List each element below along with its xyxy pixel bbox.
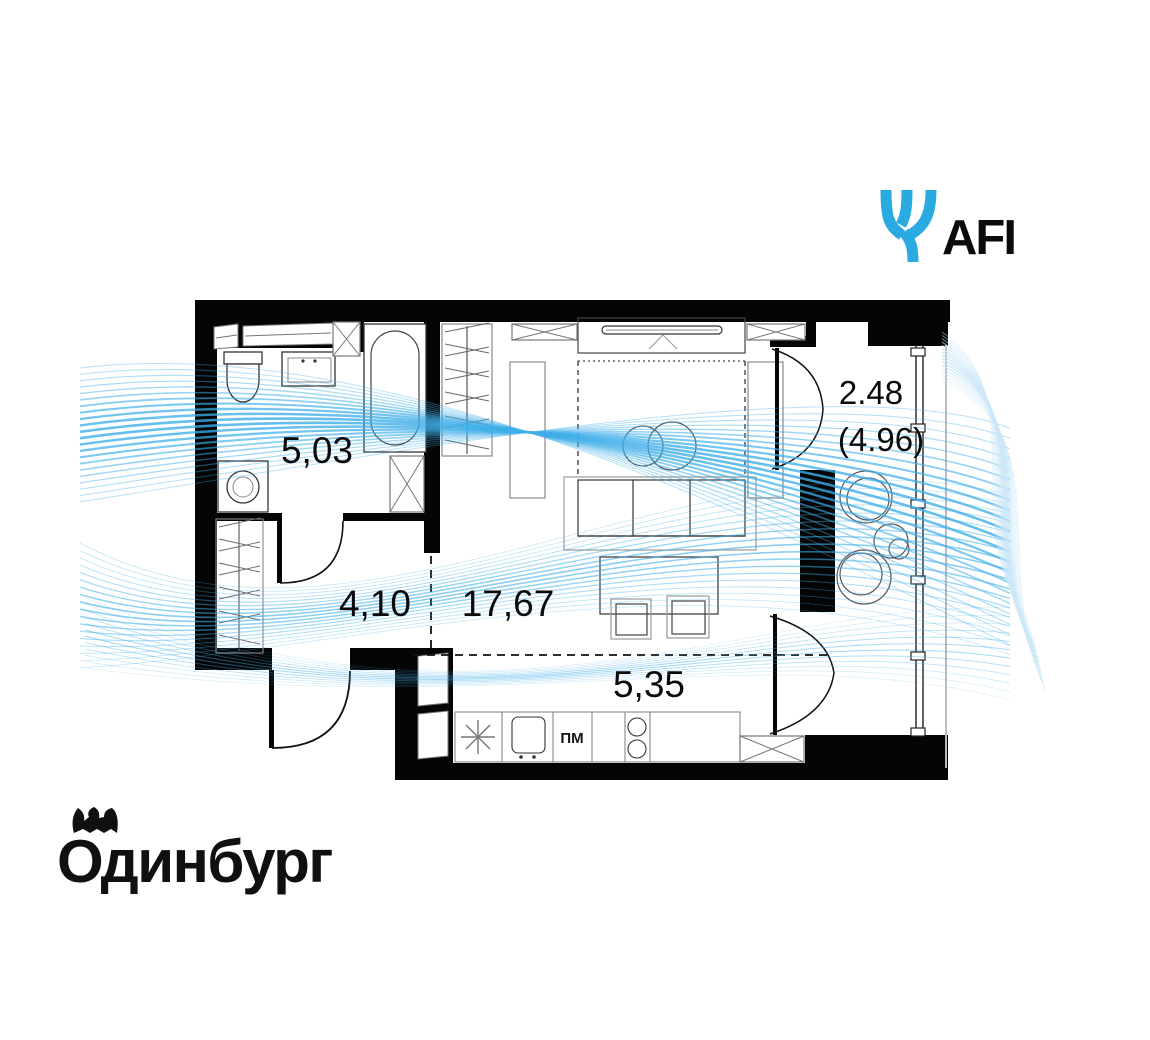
tv-stand-legs-icon — [649, 335, 677, 349]
toilet-tank-icon — [224, 352, 262, 364]
tv-console-icon — [578, 318, 745, 353]
hallway-fixtures — [216, 519, 350, 748]
balcony-door-lower-leaf — [773, 614, 777, 735]
area-label-balcony-total: (4.96) — [838, 421, 924, 458]
odinburg-logo: Одинбург — [57, 804, 397, 914]
area-label-bathroom: 5,03 — [281, 430, 353, 471]
afi-logo-text: AFI — [942, 214, 1015, 263]
balcony-door-lower-arc — [770, 673, 834, 734]
area-label-living-room: 17,67 — [462, 583, 555, 624]
kitchen-counter-icon — [455, 712, 740, 762]
page: 5,03 4,10 17,67 5,35 2.48 (4.96) ПМ AFI … — [0, 0, 1150, 1040]
balcony-door-upper-arc — [772, 349, 823, 409]
window-glazing — [911, 345, 946, 768]
area-label-hallway: 4,10 — [339, 583, 411, 624]
fridge-star-icon — [461, 720, 495, 754]
afi-logo-glyph-icon — [880, 188, 944, 264]
afi-logo: AFI — [880, 188, 1100, 264]
bathroom-door-arc — [280, 521, 343, 583]
area-label-balcony: 2.48 — [839, 374, 903, 411]
bathroom-door-leaf — [277, 513, 282, 583]
balcony-door-upper-leaf — [775, 348, 779, 470]
area-label-kitchen: 5,35 — [613, 664, 685, 705]
odinburg-logo-text: Одинбург — [57, 832, 332, 892]
dishwasher-label: ПМ — [560, 730, 583, 747]
